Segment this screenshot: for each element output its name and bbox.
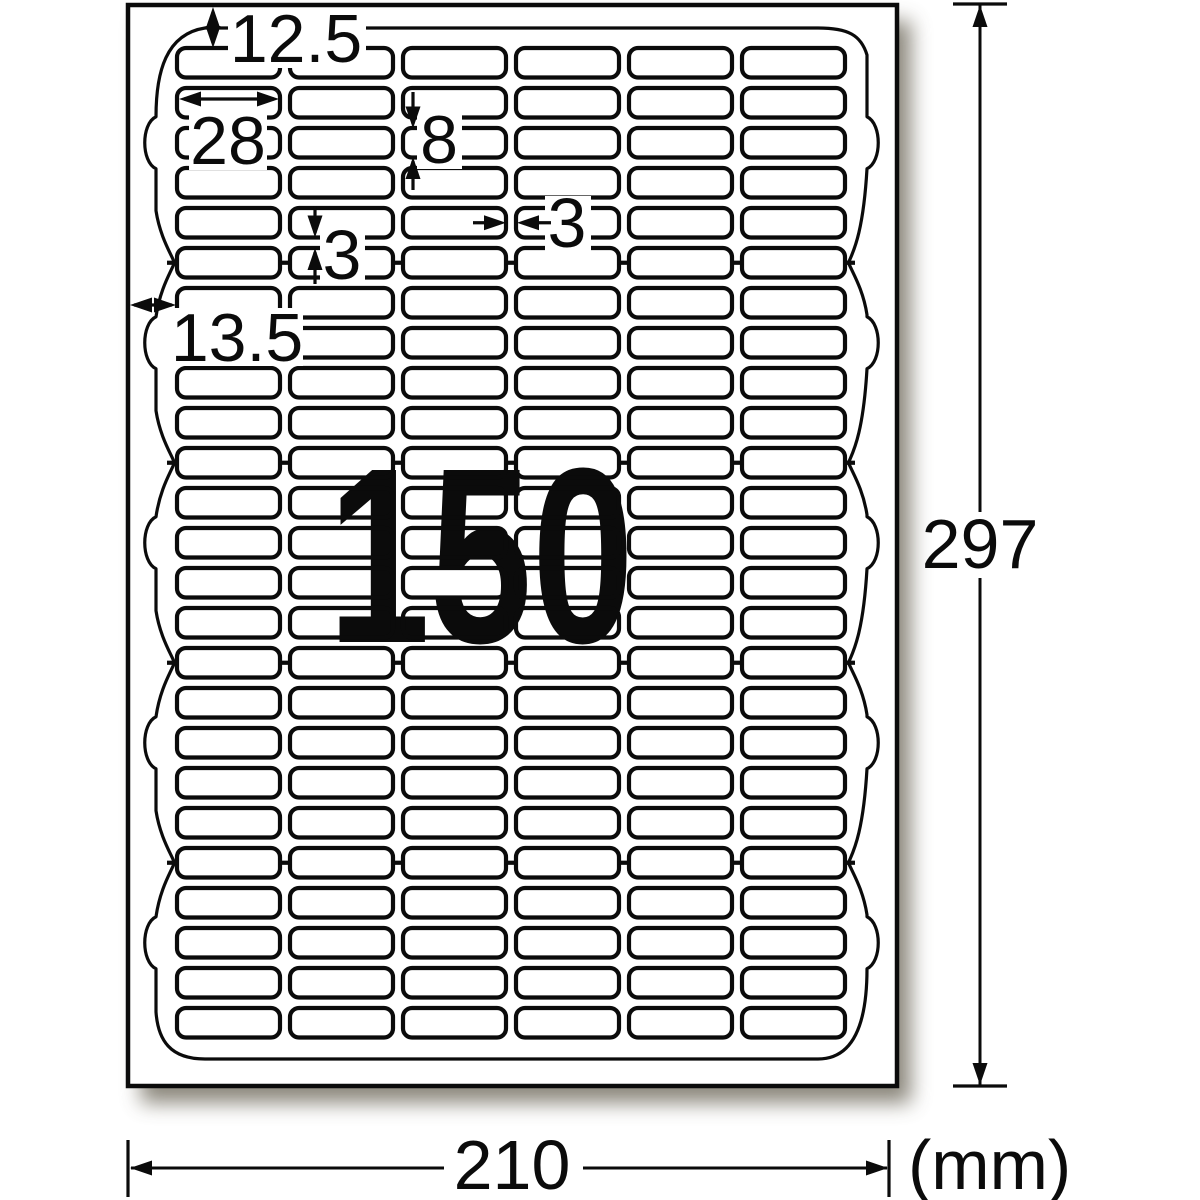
diagram-svg: 150 12.5 28 8 3 3 13.5 297 210 (mm) — [0, 0, 1200, 1200]
sheet-height-arrowhead — [973, 5, 988, 27]
dim-unit: (mm) — [908, 1126, 1071, 1200]
dim-sheet-width: 210 — [454, 1126, 571, 1200]
dim-row-gap: 3 — [323, 216, 362, 294]
dim-label-width: 28 — [190, 103, 266, 179]
sheet-height-arrowhead — [973, 1063, 988, 1085]
label-sheet-diagram: 150 12.5 28 8 3 3 13.5 297 210 (mm) — [0, 0, 1200, 1200]
dim-sheet-height: 297 — [922, 505, 1039, 583]
sheet-width-arrowhead — [866, 1161, 888, 1176]
dim-label-height: 8 — [420, 102, 458, 178]
sheet-width-arrowhead — [130, 1161, 152, 1176]
dim-top-margin: 12.5 — [230, 1, 362, 77]
dim-left-margin: 13.5 — [171, 300, 303, 376]
dim-col-gap: 3 — [548, 184, 587, 262]
